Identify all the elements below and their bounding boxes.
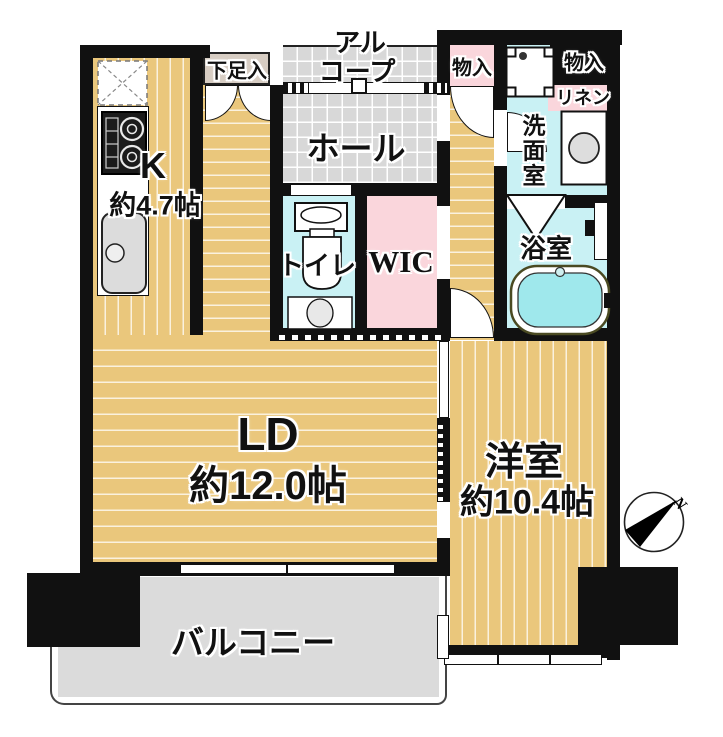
hall-label: ホール [307,122,406,170]
kitchen-size-label: 約4.7帖 [109,184,201,223]
western-room-size-label: 約10.4帖 [460,475,594,524]
top-storage-label: 物入 [564,47,604,76]
sliding-door-track [438,420,443,502]
balcony-partition-panel [437,615,449,659]
kitchen-sink-icon [100,211,148,295]
entry-corridor-floor [203,85,270,340]
hall-storage-label: 物入 [452,52,492,81]
wall-right-outer [607,30,620,660]
kitchen-label: K [140,145,166,187]
alcove-label-line2: コープ [319,52,395,89]
bath-faucet-icon [585,220,595,236]
pillar-bottom-right [578,567,678,645]
pillar-bottom-left [27,573,140,647]
living-dining-size-label: 約12.0帖 [189,453,347,511]
washroom-door-opening [494,110,507,166]
entrance-door-frame-right [424,82,448,94]
compass: N [620,486,696,562]
ld-window [180,564,395,574]
ld-western-sliding-door [439,341,449,418]
wall-hall-right [437,30,450,340]
wall-entry-hall-divider [270,85,283,340]
wic-door-opening [437,205,450,280]
toilet-counter [287,296,353,330]
balcony-label: バルコニー [171,616,335,664]
hall-corridor-opening [437,95,450,141]
entrance-door-frame-left [283,82,309,94]
beam-dashed-line [272,335,448,340]
refrigerator-space-icon [97,60,148,106]
washroom-label: 洗面室 [515,114,549,189]
wic-label: WIC [368,244,433,280]
wall-left [80,45,93,576]
bathroom-label: 浴室 [520,229,572,266]
toilet-label: トイレ [278,246,356,283]
linen-label: リネン [556,84,610,110]
western-window [444,654,602,665]
western-window-divider-2 [549,655,551,664]
vanity-sink-icon [505,46,555,98]
wall-toilet-wic-divider [355,196,367,340]
western-window-divider-1 [497,655,499,664]
shoe-storage-label: 下足入 [207,55,267,84]
washing-machine-icon [560,110,608,186]
wall-ld-western-lower [437,538,450,576]
toilet-door [290,184,352,196]
bath-counter [594,202,608,260]
bathtub-icon [508,263,614,339]
floorplan: N K 約4.7帖 下足入 アル コープ ホール 物入 物入 リネン 洗面室 浴… [0,0,723,737]
ld-window-divider [286,565,288,573]
